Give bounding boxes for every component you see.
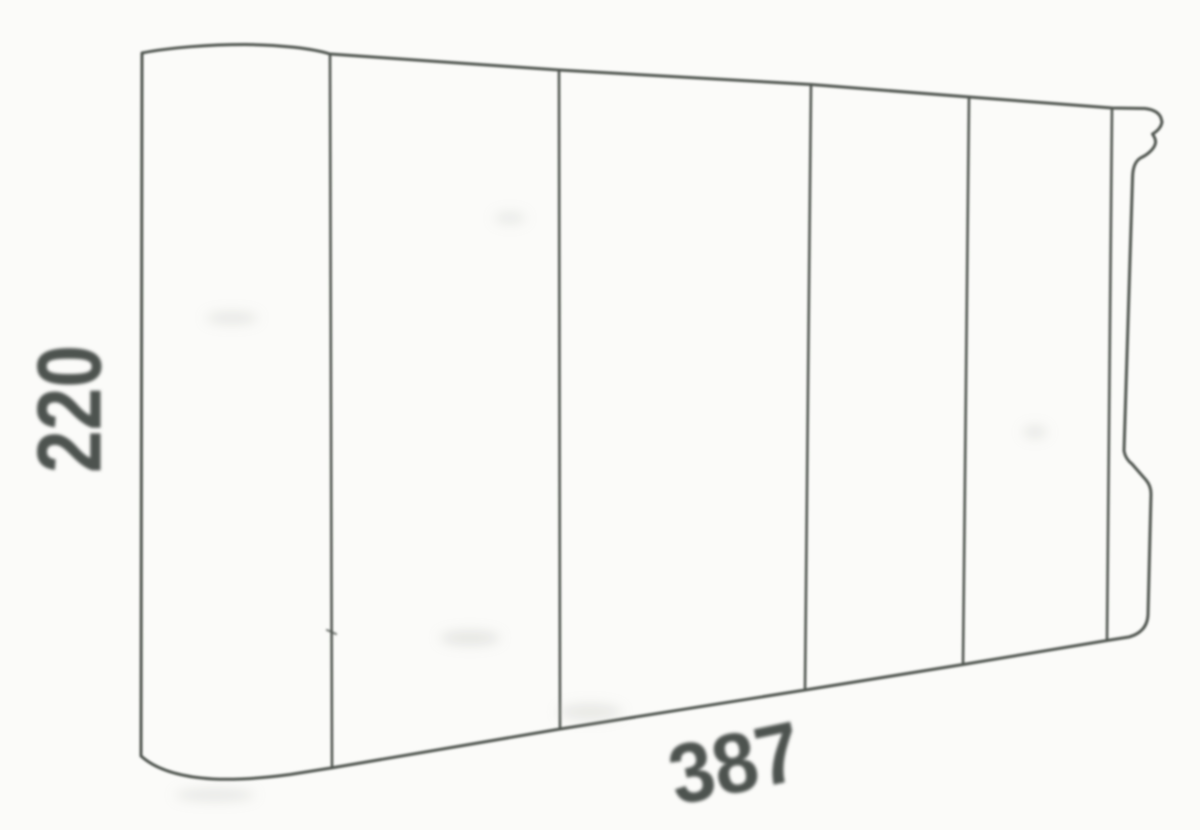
svg-text:220: 220	[20, 345, 121, 473]
